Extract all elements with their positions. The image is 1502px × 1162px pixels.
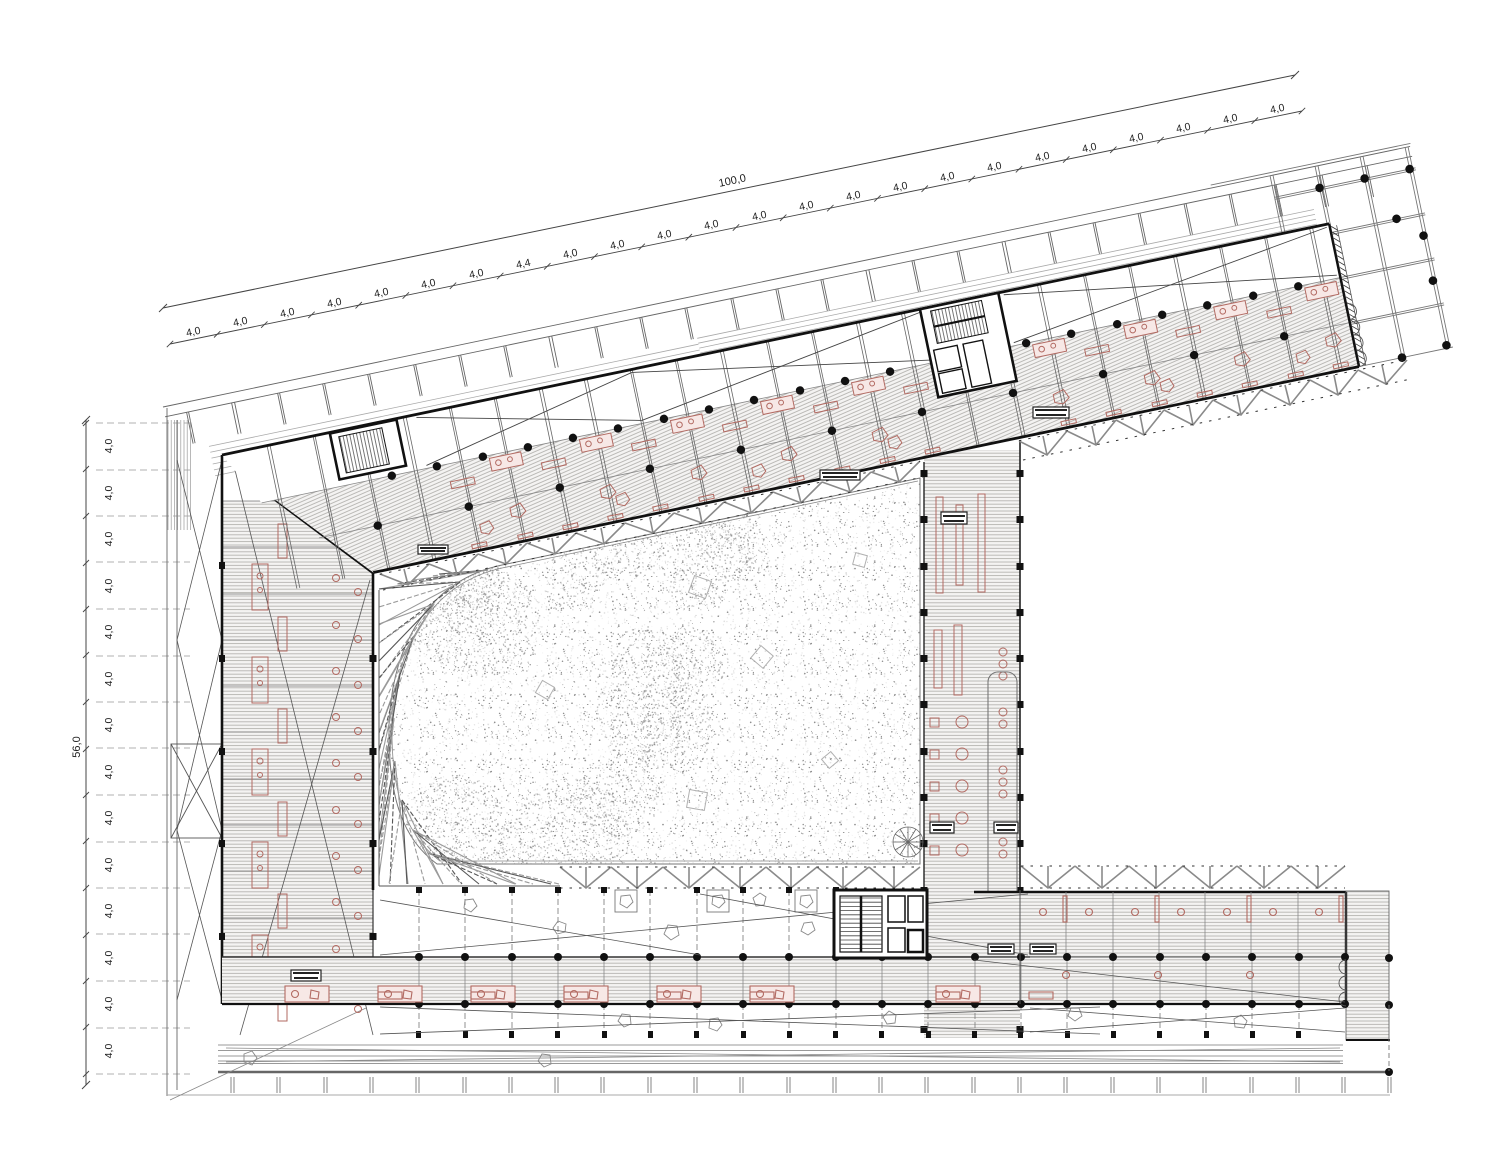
svg-text:4,0: 4,0 xyxy=(103,997,115,1012)
svg-text:4,0: 4,0 xyxy=(103,1044,115,1059)
svg-text:4,0: 4,0 xyxy=(103,532,115,547)
svg-text:4,0: 4,0 xyxy=(103,486,115,501)
svg-text:4,0: 4,0 xyxy=(103,672,115,687)
svg-text:4,0: 4,0 xyxy=(103,765,115,780)
svg-text:4,0: 4,0 xyxy=(103,625,115,640)
svg-text:4,0: 4,0 xyxy=(103,718,115,733)
svg-text:4,0: 4,0 xyxy=(103,811,115,826)
svg-text:4,0: 4,0 xyxy=(103,579,115,594)
svg-text:4,0: 4,0 xyxy=(103,858,115,873)
svg-text:4,0: 4,0 xyxy=(103,951,115,966)
svg-text:56,0: 56,0 xyxy=(71,736,83,757)
svg-text:4,0: 4,0 xyxy=(103,904,115,919)
svg-text:4,0: 4,0 xyxy=(103,439,115,454)
